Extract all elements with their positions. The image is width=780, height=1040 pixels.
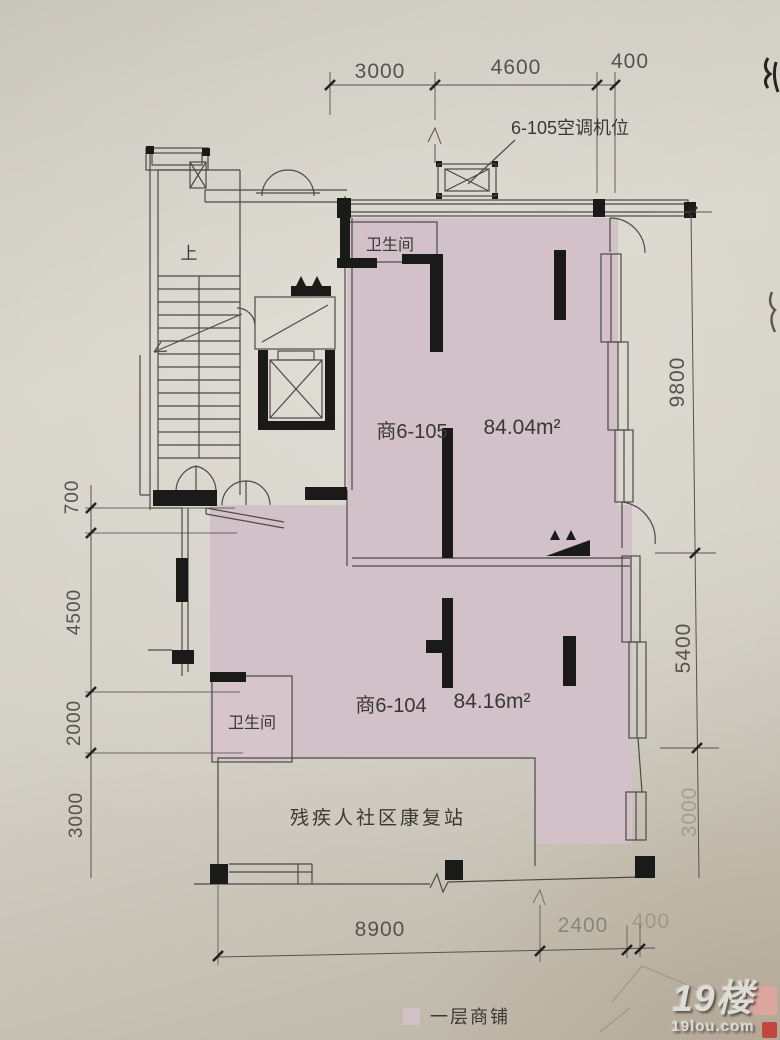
edge-calligraphy-mid	[770, 292, 775, 332]
floor-plan-drawing: 3000 4600 400 9800 5400 3000 700 4500 20…	[0, 0, 780, 1040]
dim-top-3000: 3000	[355, 60, 406, 83]
ac-unit-box	[438, 140, 515, 196]
shop-104-name: 商6-104	[355, 694, 426, 717]
dim-left-700: 700	[62, 480, 83, 515]
stair-direction-arrow	[154, 314, 242, 352]
legend-label: 一层商铺	[430, 1007, 510, 1027]
rehab-station-label: 残疾人社区康复站	[290, 807, 466, 829]
bathroom-104-label: 卫生间	[228, 714, 276, 732]
shop-104-area: 84.16m²	[453, 690, 530, 713]
lobby-entry-double-door	[256, 170, 320, 196]
elevator-x	[270, 360, 322, 418]
dim-left-3000: 3000	[66, 792, 87, 838]
legend-swatch	[403, 1008, 420, 1025]
watermark-subtitle: 19lou.com	[648, 1019, 778, 1034]
dim-bottom-400: 400	[632, 910, 670, 933]
dimension-right	[655, 207, 719, 878]
top-window-band	[205, 190, 688, 216]
watermark-title: 19楼	[648, 980, 778, 1017]
edge-calligraphy-top	[765, 58, 778, 92]
bathroom-105-label: 卫生间	[366, 236, 414, 254]
dim-left-4500: 4500	[64, 589, 85, 635]
ac-condenser-lobby	[291, 276, 331, 296]
dim-top-4600: 4600	[491, 56, 542, 79]
dim-bottom-2400: 2400	[558, 914, 609, 937]
dim-right-3000: 3000	[678, 787, 701, 838]
shop-fill-areas	[210, 218, 632, 844]
dim-left-2000: 2000	[64, 700, 85, 746]
ac-callout-leader	[468, 140, 515, 184]
dim-right-9800: 9800	[666, 357, 689, 408]
dim-right-5400: 5400	[672, 623, 695, 674]
shop-105-name: 商6-105	[376, 420, 447, 443]
stair-bottom-door-arcs	[176, 466, 216, 492]
stair-up-label: 上	[181, 244, 198, 263]
dim-top-400: 400	[611, 50, 649, 73]
shop-105-area: 84.04m²	[483, 416, 560, 439]
dim-bottom-8900: 8900	[355, 918, 406, 941]
watermark: 19楼 19lou.com	[648, 980, 778, 1034]
stair-top-boxes	[146, 148, 208, 188]
ac-callout-label: 6-105空调机位	[511, 118, 629, 138]
legend: 一层商铺	[403, 1007, 510, 1027]
elevator-unit	[237, 297, 335, 418]
